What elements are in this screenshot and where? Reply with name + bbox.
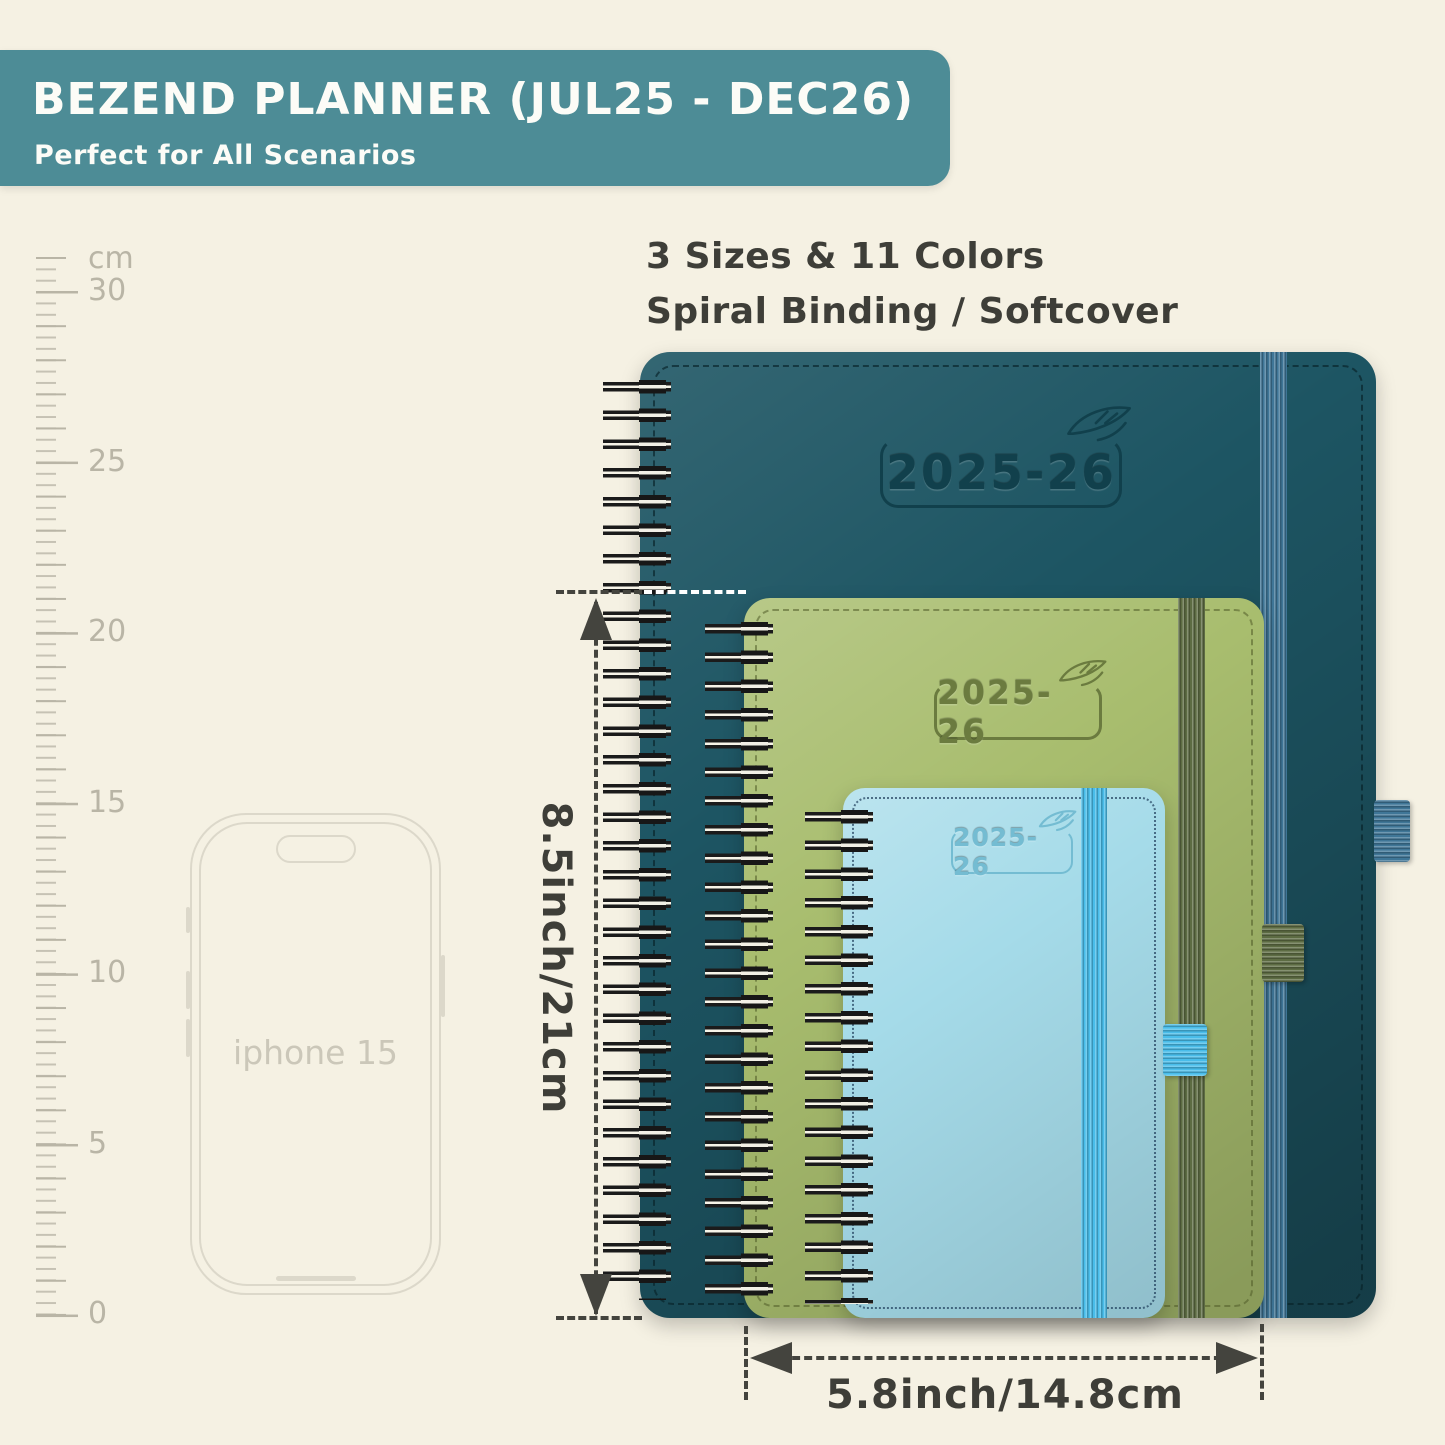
volume-button — [186, 971, 190, 1009]
emboss-frame: 2025-26 — [934, 684, 1102, 740]
height-dimension-line — [594, 602, 598, 1314]
width-extension-line-right — [1260, 1324, 1264, 1400]
feather-icon — [1054, 657, 1110, 691]
header-banner: BEZEND PLANNER (JUL25 - DEC26) Perfect f… — [0, 50, 950, 186]
feather-icon — [1060, 402, 1136, 448]
feather-icon — [1035, 808, 1079, 835]
ruler-mark-10: 10 — [88, 957, 126, 989]
elastic-band — [1081, 788, 1107, 1318]
height-extension-line-bottom — [556, 1316, 642, 1320]
right-arrowhead — [1216, 1342, 1258, 1374]
down-arrowhead — [580, 1274, 612, 1316]
volume-button — [186, 907, 190, 933]
height-dimension-label: 8.5inch/21cm — [533, 748, 579, 1168]
iphone-outline: iphone 15 — [190, 813, 441, 1295]
product-title: BEZEND PLANNER (JUL25 - DEC26) — [32, 74, 914, 125]
spiral-binding — [805, 804, 873, 1304]
product-image: BEZEND PLANNER (JUL25 - DEC26) Perfect f… — [0, 0, 1445, 1445]
year-label-large: 2025-26 — [886, 446, 1116, 501]
embossed-logo: 2025-26 — [880, 438, 1122, 508]
elastic-band — [1260, 352, 1287, 1318]
left-arrowhead — [750, 1342, 792, 1374]
feature-line-sizes: 3 Sizes & 11 Colors — [646, 236, 1178, 277]
ruler-unit-label: cm — [88, 243, 134, 275]
ruler-mark-5: 5 — [88, 1128, 107, 1160]
feature-line-binding: Spiral Binding / Softcover — [646, 291, 1178, 332]
width-dimension-label: 5.8inch/14.8cm — [805, 1372, 1205, 1418]
emboss-frame: 2025-26 — [951, 830, 1073, 874]
spiral-clips — [741, 616, 768, 1304]
pen-loop — [1163, 1024, 1207, 1076]
emboss-frame: 2025-26 — [880, 438, 1122, 508]
up-arrowhead — [580, 598, 612, 640]
spiral-binding — [603, 374, 671, 1300]
power-button — [441, 955, 445, 1017]
ruler-mark-30: 30 — [88, 275, 126, 307]
ruler-mark-0: 0 — [88, 1298, 107, 1330]
volume-button — [186, 1019, 190, 1057]
width-dimension-line — [768, 1356, 1246, 1360]
spiral-binding — [705, 616, 773, 1304]
home-indicator — [276, 1276, 356, 1281]
embossed-logo: 2025-26 — [934, 684, 1102, 740]
iphone-label: iphone 15 — [192, 1033, 439, 1072]
ruler: cm 30 25 20 15 10 5 0 — [36, 250, 146, 1325]
spiral-clips — [841, 804, 868, 1304]
pen-loop — [1262, 924, 1304, 982]
ruler-mark-15: 15 — [88, 787, 126, 819]
ruler-ticks — [36, 250, 80, 1318]
pen-loop — [1374, 800, 1410, 862]
dynamic-island — [276, 835, 356, 863]
height-extension-line-top — [556, 590, 642, 594]
spiral-clips — [639, 374, 666, 1300]
height-extension-line-top-on-cover — [644, 590, 746, 594]
elastic-band — [1178, 598, 1205, 1318]
feature-text: 3 Sizes & 11 Colors Spiral Binding / Sof… — [646, 236, 1178, 332]
ruler-mark-20: 20 — [88, 616, 126, 648]
width-extension-line-left — [744, 1326, 748, 1400]
embossed-logo: 2025-26 — [951, 830, 1073, 874]
planner-cover-small: 2025-26 — [843, 788, 1165, 1318]
ruler-mark-25: 25 — [88, 446, 126, 478]
product-subtitle: Perfect for All Scenarios — [34, 140, 417, 171]
